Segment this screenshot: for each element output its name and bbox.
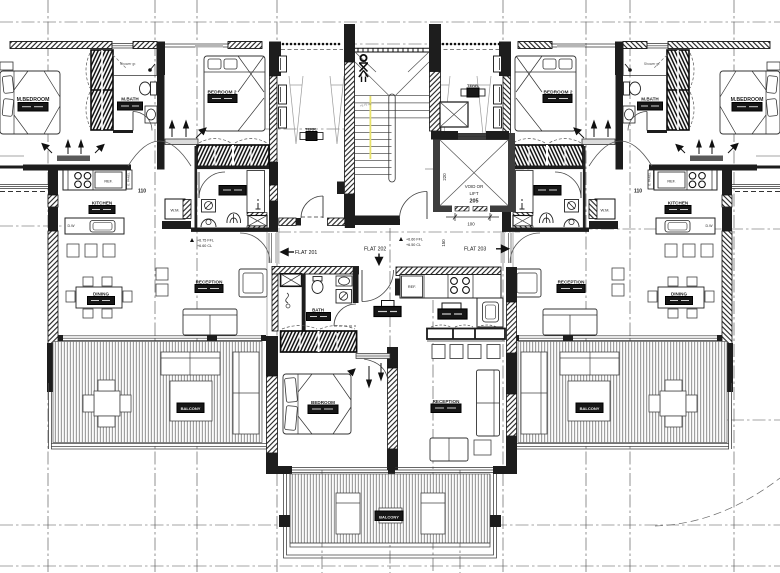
- svg-text:TERR.: TERR.: [305, 127, 317, 132]
- svg-text:BEDROOM 2: BEDROOM 2: [543, 89, 572, 95]
- svg-text:FLAT 202: FLAT 202: [364, 247, 386, 253]
- svg-text:110: 110: [634, 189, 642, 195]
- svg-text:REF.: REF.: [408, 285, 416, 289]
- svg-text:M.BEDROOM: M.BEDROOM: [731, 97, 764, 103]
- svg-text:25: 25: [433, 27, 437, 31]
- svg-text:+6.60 FFL: +6.60 FFL: [406, 238, 423, 242]
- svg-text:TERR.: TERR.: [467, 83, 479, 88]
- svg-text:LIFT: LIFT: [469, 191, 478, 196]
- svg-text:M.BEDROOM: M.BEDROOM: [17, 97, 50, 103]
- svg-text:W.M.: W.M.: [170, 208, 179, 213]
- svg-text:DINING: DINING: [671, 292, 688, 297]
- svg-text:BALCONY: BALCONY: [580, 406, 600, 411]
- svg-text:E. PANEL: E. PANEL: [127, 172, 131, 186]
- svg-text:M.BATH: M.BATH: [121, 97, 139, 102]
- svg-text:205: 205: [470, 199, 479, 205]
- svg-text:+6.50 CL: +6.50 CL: [406, 243, 421, 247]
- svg-text:M.BATH: M.BATH: [641, 97, 659, 102]
- svg-text:BEDROOM 2: BEDROOM 2: [207, 89, 236, 95]
- svg-text:BEDROOM: BEDROOM: [311, 400, 335, 405]
- svg-text:110: 110: [138, 189, 146, 195]
- svg-text:Shower gr.: Shower gr.: [644, 62, 660, 66]
- svg-text:RECEPTION: RECEPTION: [433, 399, 460, 404]
- svg-text:E. PANEL: E. PANEL: [648, 172, 652, 186]
- svg-text:100: 100: [467, 222, 475, 227]
- svg-text:+6.75 FFL: +6.75 FFL: [197, 239, 214, 243]
- svg-text:KITCHEN: KITCHEN: [92, 200, 113, 205]
- svg-text:VOID OR: VOID OR: [465, 184, 484, 189]
- svg-text:KITCHEN: KITCHEN: [668, 200, 689, 205]
- svg-text:REF.: REF.: [104, 180, 112, 184]
- svg-text:BALCONY: BALCONY: [379, 515, 399, 520]
- svg-text:DINING: DINING: [93, 292, 110, 297]
- svg-text:D.W: D.W: [706, 224, 714, 228]
- svg-text:FLAT 201: FLAT 201: [295, 250, 317, 256]
- svg-text:FLAT 203: FLAT 203: [464, 247, 486, 253]
- svg-text:REF.: REF.: [667, 180, 675, 184]
- svg-text:220: 220: [442, 173, 447, 181]
- svg-text:D.W: D.W: [68, 224, 76, 228]
- svg-text:+6.60 CL: +6.60 CL: [197, 244, 212, 248]
- svg-text:BATH: BATH: [312, 308, 324, 313]
- svg-text:RECEPTION: RECEPTION: [196, 280, 223, 285]
- svg-text:RECEPTION: RECEPTION: [558, 280, 585, 285]
- svg-text:BALCONY: BALCONY: [181, 406, 201, 411]
- svg-text:150: 150: [441, 239, 446, 247]
- svg-text:W.M.: W.M.: [600, 208, 609, 213]
- svg-text:Shower gr.: Shower gr.: [120, 62, 136, 66]
